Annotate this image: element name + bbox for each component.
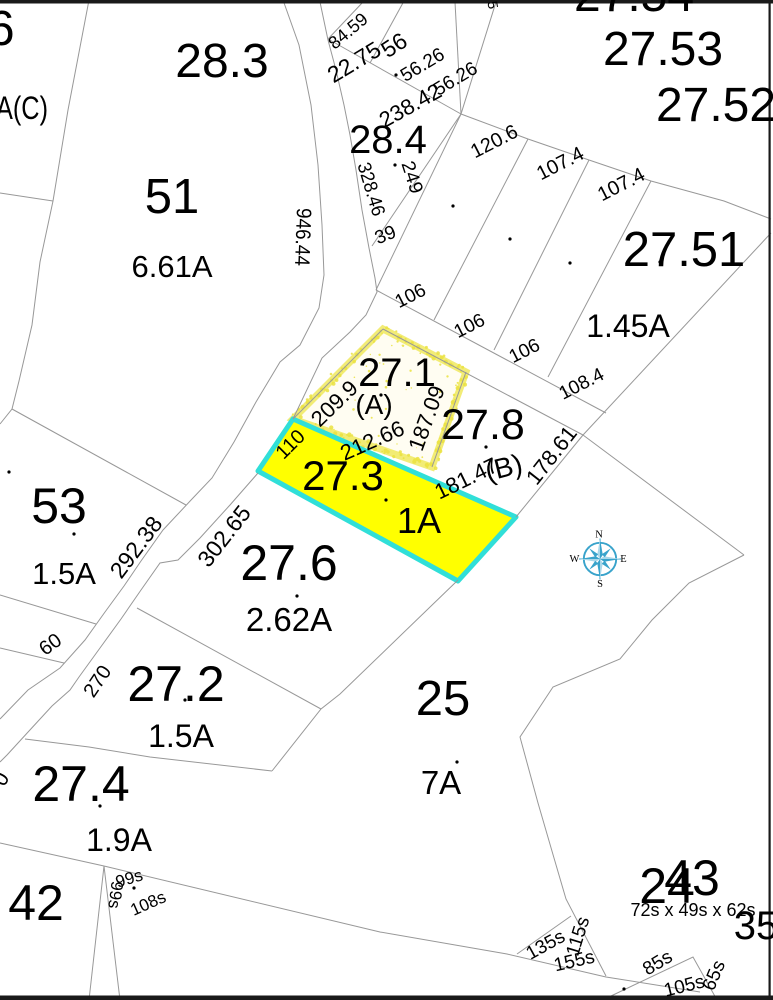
svg-text:27.6: 27.6 <box>240 535 337 591</box>
svg-text:2.62A: 2.62A <box>246 601 332 638</box>
svg-text:6: 6 <box>0 2 15 56</box>
svg-text:1.9A: 1.9A <box>86 822 152 858</box>
svg-text:W: W <box>570 554 580 565</box>
svg-text:1.5A: 1.5A <box>32 556 96 591</box>
svg-text:1.5A: 1.5A <box>148 718 214 754</box>
svg-text:6.61A: 6.61A <box>131 249 212 284</box>
svg-text:27.51: 27.51 <box>623 223 746 277</box>
svg-text:7A: 7A <box>421 764 461 801</box>
svg-text:25: 25 <box>416 672 471 726</box>
svg-text:27.2: 27.2 <box>127 656 224 712</box>
svg-text:N: N <box>595 530 603 541</box>
svg-text:51: 51 <box>145 170 200 224</box>
svg-text:S: S <box>597 579 603 590</box>
svg-text:1.45A: 1.45A <box>586 308 670 344</box>
svg-text:27.8: 27.8 <box>441 401 525 449</box>
svg-text:42: 42 <box>8 875 64 931</box>
svg-text:946.44: 946.44 <box>290 208 315 267</box>
svg-text:1A: 1A <box>397 500 441 541</box>
svg-text:43: 43 <box>664 850 720 906</box>
svg-text:99s: 99s <box>104 880 126 910</box>
svg-text:E: E <box>620 554 626 565</box>
svg-text:27.54: 27.54 <box>574 0 694 22</box>
svg-text:27.52: 27.52 <box>656 79 773 132</box>
svg-text:53: 53 <box>31 478 87 534</box>
svg-text:72s x 49s x 62s: 72s x 49s x 62s <box>630 900 755 920</box>
svg-text:28.3: 28.3 <box>175 35 268 88</box>
svg-text:27.53: 27.53 <box>603 23 723 76</box>
svg-text:A(C): A(C) <box>0 90 48 126</box>
svg-text:27.4: 27.4 <box>32 756 129 812</box>
